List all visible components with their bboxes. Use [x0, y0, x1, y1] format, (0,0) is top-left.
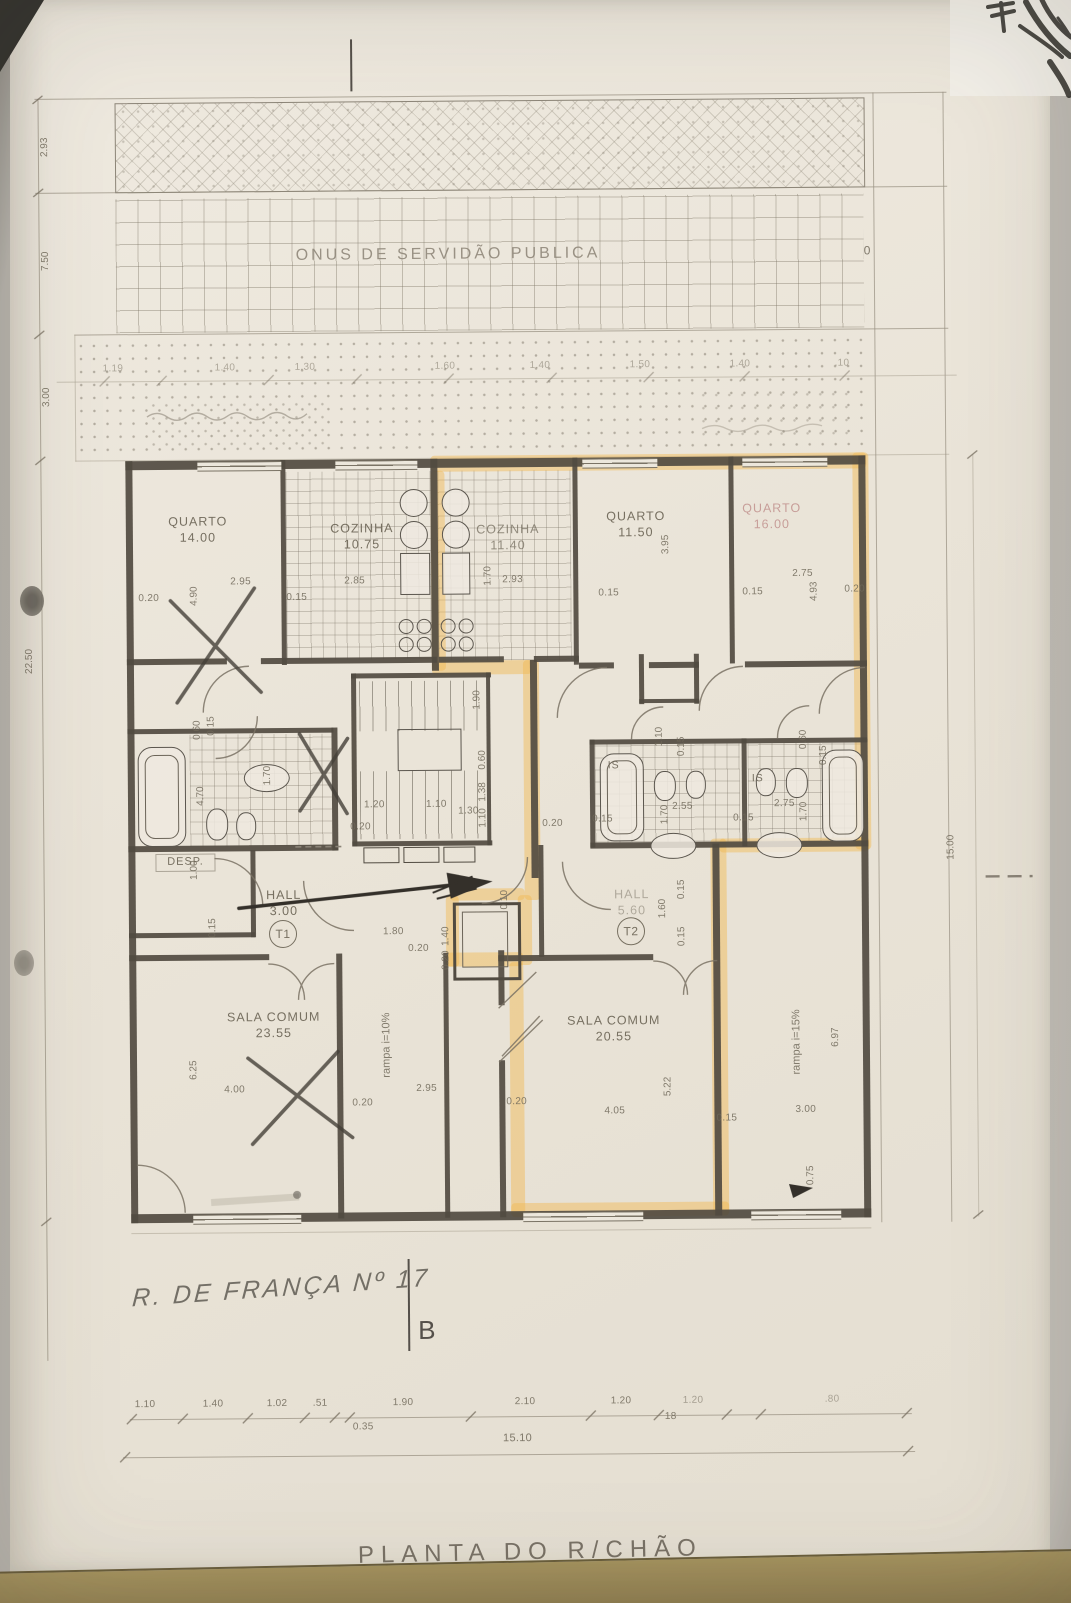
ink-arrow — [239, 872, 493, 908]
door-arcs — [133, 661, 869, 1213]
pencil-x-marks — [170, 587, 352, 1144]
pencil-annotations-overlay — [0, 0, 1071, 1603]
ink-door-mark — [789, 1184, 813, 1198]
dim-ticks — [32, 89, 985, 1463]
faint-scribbles — [147, 408, 828, 1203]
floor-plan-drawing: 2.93 ONUS DE SERVIDÃO PUBLICA 7.50 0 3.0… — [0, 0, 1071, 1603]
dashed-guides — [295, 841, 1032, 882]
photo-of-floor-plan: 2.93 ONUS DE SERVIDÃO PUBLICA 7.50 0 3.0… — [0, 0, 1071, 1603]
